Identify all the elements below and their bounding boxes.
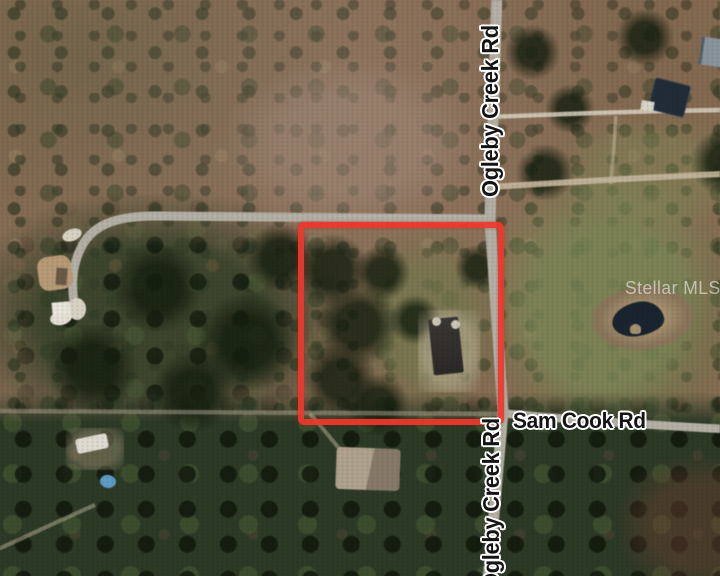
road-label-ogleby-creek-top: Ogleby Creek Rd — [477, 25, 504, 197]
stellar-mls-watermark: Stellar MLS — [625, 278, 720, 299]
parcel-boundary — [298, 222, 504, 425]
satellite-map[interactable]: Ogleby Creek Rd Sam Cook Rd Ogleby Creek… — [0, 0, 720, 576]
road-label-sam-cook: Sam Cook Rd — [513, 408, 646, 434]
road-label-ogleby-creek-bottom: Ogleby Creek Rd — [478, 418, 505, 576]
